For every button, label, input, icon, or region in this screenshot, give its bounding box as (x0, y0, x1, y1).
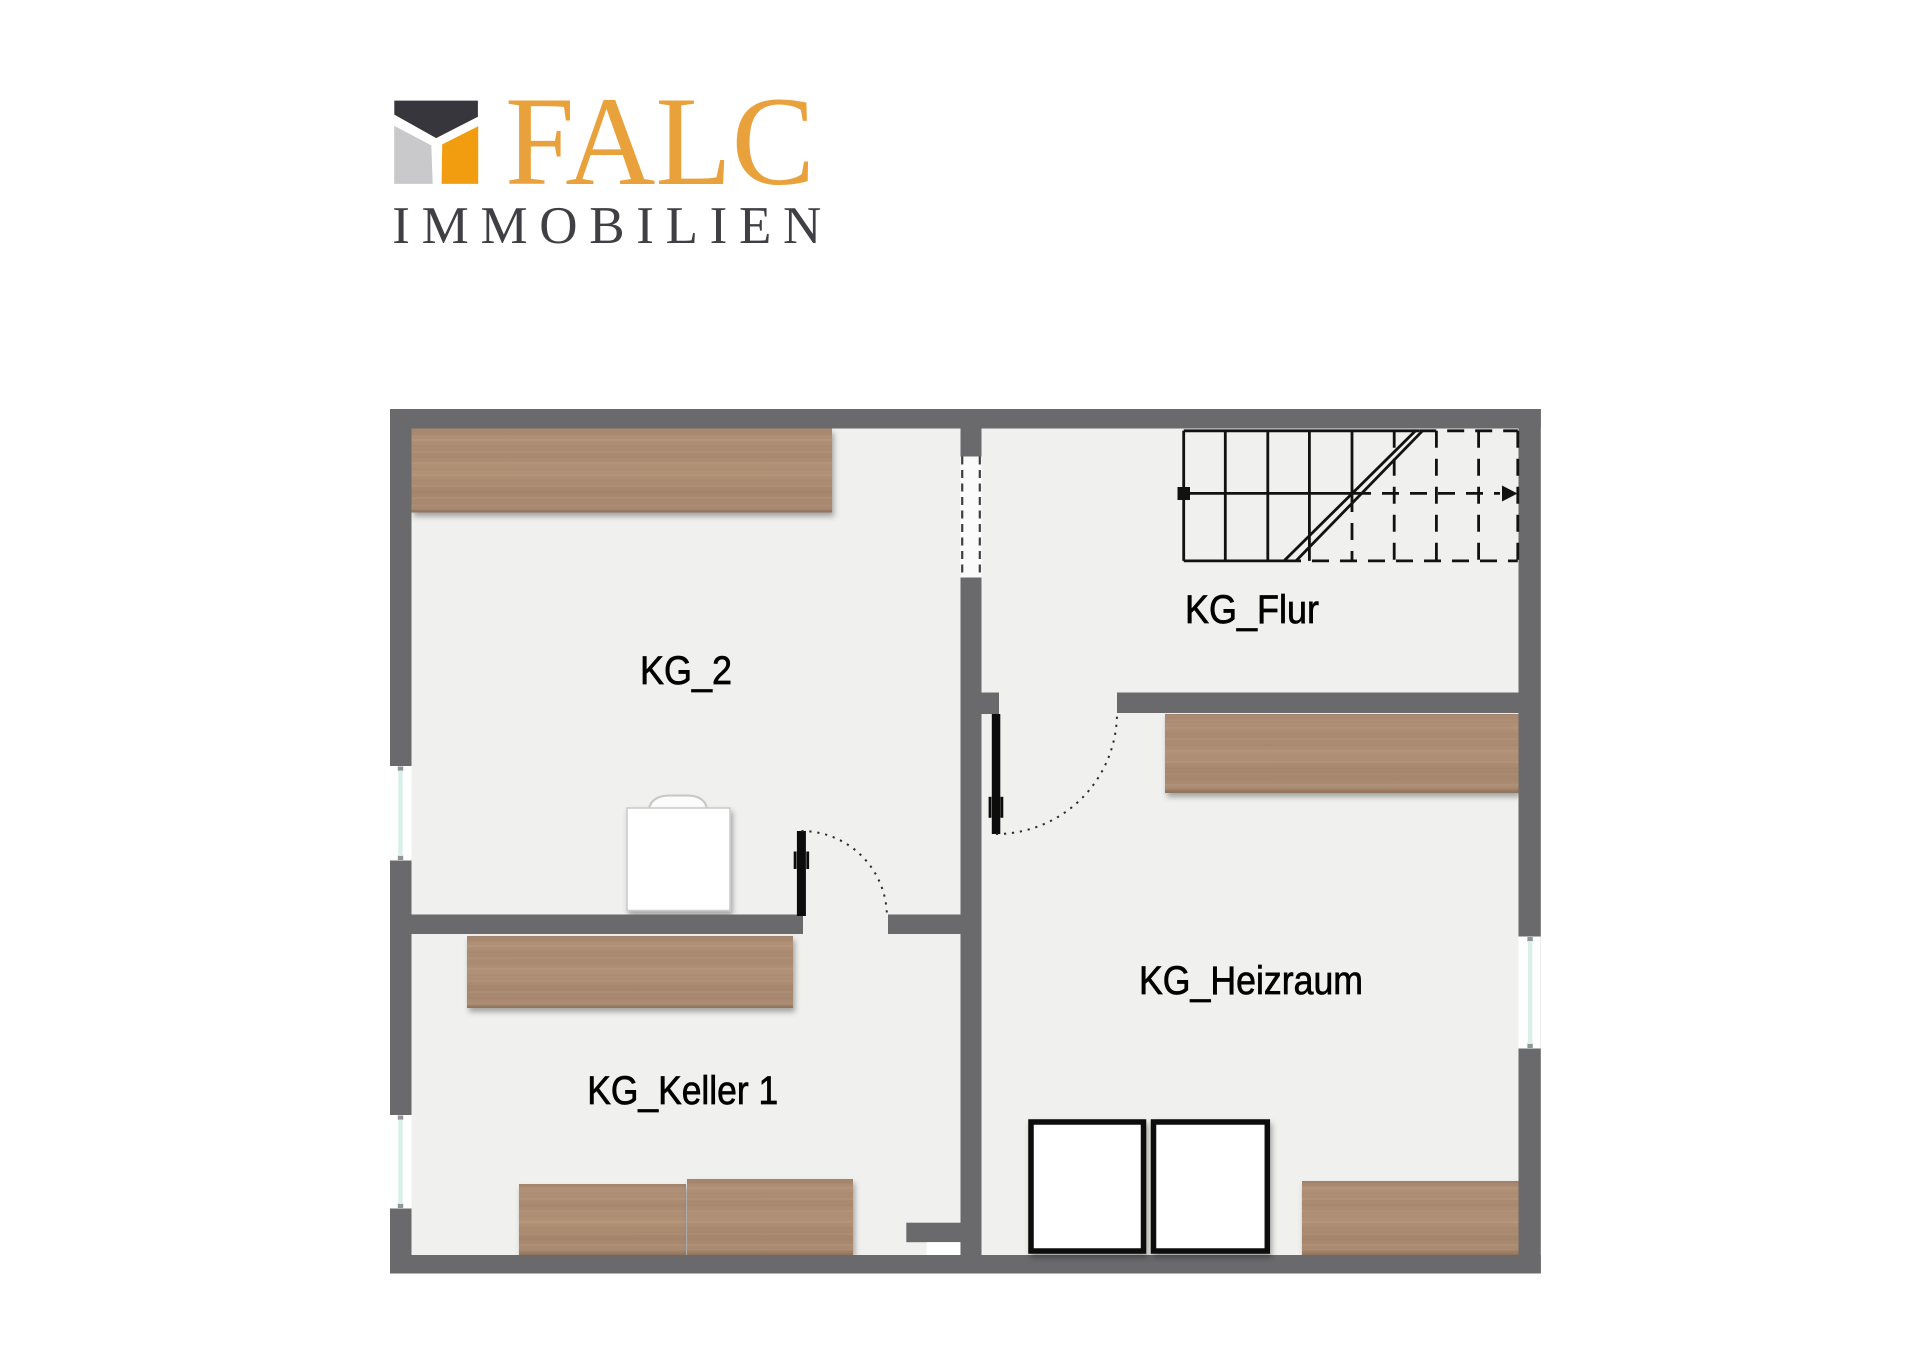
svg-text:IMMOBILIEN: IMMOBILIEN (392, 197, 821, 255)
svg-text:FALC: FALC (505, 72, 815, 212)
svg-text:KG_Flur: KG_Flur (1185, 588, 1319, 632)
svg-text:KG_Heizraum: KG_Heizraum (1139, 959, 1363, 1003)
svg-text:KG_2: KG_2 (640, 649, 732, 693)
svg-text:KG_Keller 1: KG_Keller 1 (587, 1069, 778, 1113)
